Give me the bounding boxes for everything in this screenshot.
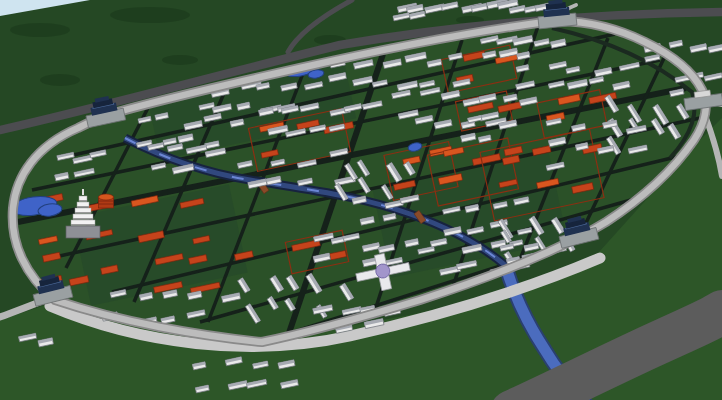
pagoda-tier-shadow (71, 224, 95, 225)
tree-patch (110, 7, 190, 23)
city-render-canvas (0, 0, 722, 400)
tree-patch (162, 55, 198, 65)
tree-patch (40, 74, 80, 86)
pagoda-tier-shadow (75, 212, 91, 213)
pagoda-tier-shadow (73, 218, 93, 219)
pagoda-platform (66, 226, 100, 238)
pagoda-tier-shadow (77, 206, 89, 207)
ancient-city-3d-map (0, 0, 722, 400)
drum-tower (99, 194, 114, 208)
pagoda-finial (82, 189, 84, 195)
pagoda-tier-shadow (79, 200, 87, 201)
drum-tower-top (99, 194, 114, 200)
tree-patch (10, 23, 70, 37)
